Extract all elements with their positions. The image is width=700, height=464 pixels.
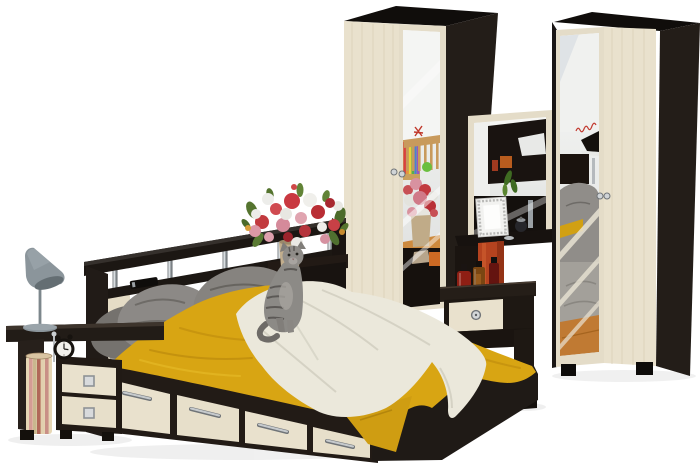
scene-canvas (0, 0, 700, 464)
trinket (504, 236, 514, 240)
right-wardrobe (552, 12, 700, 376)
right-wardrobe-mirror-reflection (558, 32, 601, 356)
reflected-green-ball (422, 162, 432, 172)
left-wardrobe-knob (399, 171, 405, 177)
nightstand-foot (102, 432, 114, 441)
lamp-stem (39, 284, 42, 328)
drawer-handle-square (84, 408, 94, 418)
right-wardrobe-knob (597, 193, 603, 199)
left-wardrobe-knob (391, 169, 397, 175)
right-wardrobe-knob (604, 193, 610, 199)
right-wardrobe-foot (561, 364, 576, 376)
right-wardrobe-side (656, 23, 700, 376)
reflected-vase (411, 215, 431, 247)
right-wardrobe-foot (636, 362, 653, 375)
striped-basket (26, 353, 52, 434)
nightstand-foot (60, 430, 72, 439)
photo-frame (476, 197, 509, 237)
reflected-wood-floor (560, 315, 599, 356)
bedroom-product-photo (0, 0, 700, 464)
nightstand-foot (20, 430, 34, 440)
vanity-table (455, 110, 556, 292)
aj-table-lamp (23, 248, 65, 332)
drawer-handle-square (84, 376, 94, 386)
